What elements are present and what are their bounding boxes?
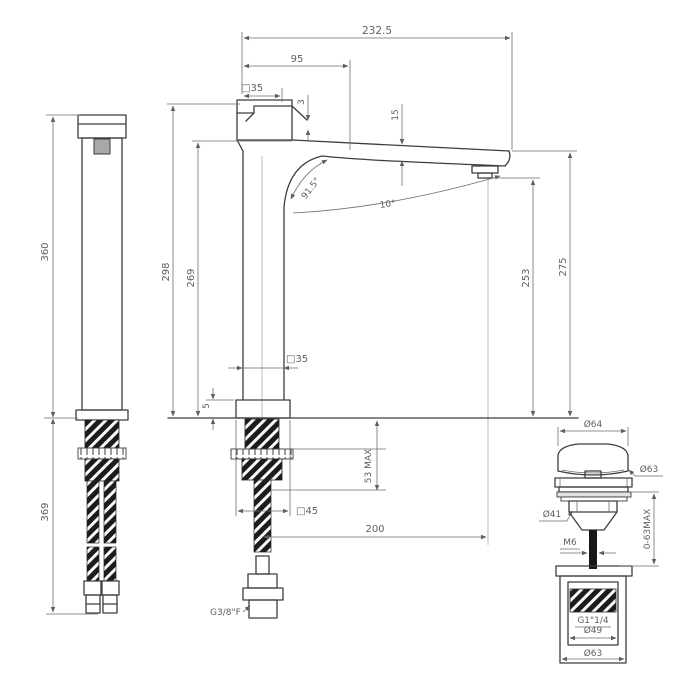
waste-body — [569, 501, 617, 512]
dim-overall-depth-label: 232.5 — [362, 25, 392, 37]
dim-spout-reach-label: 200 — [365, 524, 384, 535]
dim-height-handle-label: 298 — [161, 262, 172, 281]
waste-adjust-range-label: 0-63MAX — [643, 509, 653, 550]
waste-rod-thread-label: M6 — [563, 538, 577, 548]
threaded-rod — [254, 480, 271, 552]
technical-drawing-page: 360 369 232.5 95 — [0, 0, 700, 700]
m6-rod — [589, 530, 597, 569]
dim-deck-max-label: 53 MAX — [364, 449, 374, 483]
side-view — [76, 115, 128, 613]
waste-inner-diameter-label: Ø49 — [584, 625, 603, 636]
lock-washer — [231, 449, 293, 459]
base-plate — [236, 400, 290, 418]
aerator — [472, 166, 498, 173]
dim-body-width-label: □35 — [286, 354, 308, 365]
dim-spout-top-height-label: 275 — [558, 257, 569, 276]
handle-lever — [237, 106, 307, 121]
lock-nut — [242, 459, 282, 480]
waste-flange-diameter-label: Ø63 — [640, 464, 659, 475]
waste-thread-label: G1"1/4 — [577, 616, 609, 626]
dim-outlet-height-label: 253 — [521, 268, 532, 287]
waste-thread-band — [570, 589, 616, 612]
waste-cap-diameter-label: Ø64 — [584, 419, 603, 430]
faucet-dimension-drawing: 360 369 232.5 95 — [0, 0, 700, 700]
threaded-shank — [245, 419, 279, 449]
waste-cap — [558, 444, 628, 471]
waste-outer-diameter-label: Ø63 — [584, 648, 603, 659]
waste-body-diameter-label: Ø41 — [543, 509, 562, 520]
angle-spout-label: 10° — [379, 199, 396, 211]
dim-spout-thickness-label: 15 — [391, 109, 401, 120]
dim-hose-length-label: 369 — [40, 502, 51, 521]
under-deck-assembly — [231, 419, 293, 618]
angle-handle-label: 91.5° — [300, 176, 323, 201]
waste-flange — [555, 478, 632, 487]
dim-height-spout-base-label: 269 — [186, 268, 197, 287]
dim-spout-offset-label: 95 — [291, 54, 304, 65]
front-view-dimensions: 232.5 95 □35 3 15 91.5° 10° 298 269 253 — [161, 25, 577, 618]
dim-top-step-label: 3 — [297, 99, 307, 105]
inlet-fitting — [249, 600, 277, 618]
dim-handle-width-label: □35 — [241, 83, 263, 94]
front-view — [168, 100, 578, 418]
dim-base-width-label: □45 — [296, 506, 318, 517]
inlet-thread-label: G3/8"F — [210, 608, 241, 618]
dim-side-height-label: 360 — [40, 242, 51, 261]
dim-base-thickness-label: 5 — [202, 403, 212, 409]
